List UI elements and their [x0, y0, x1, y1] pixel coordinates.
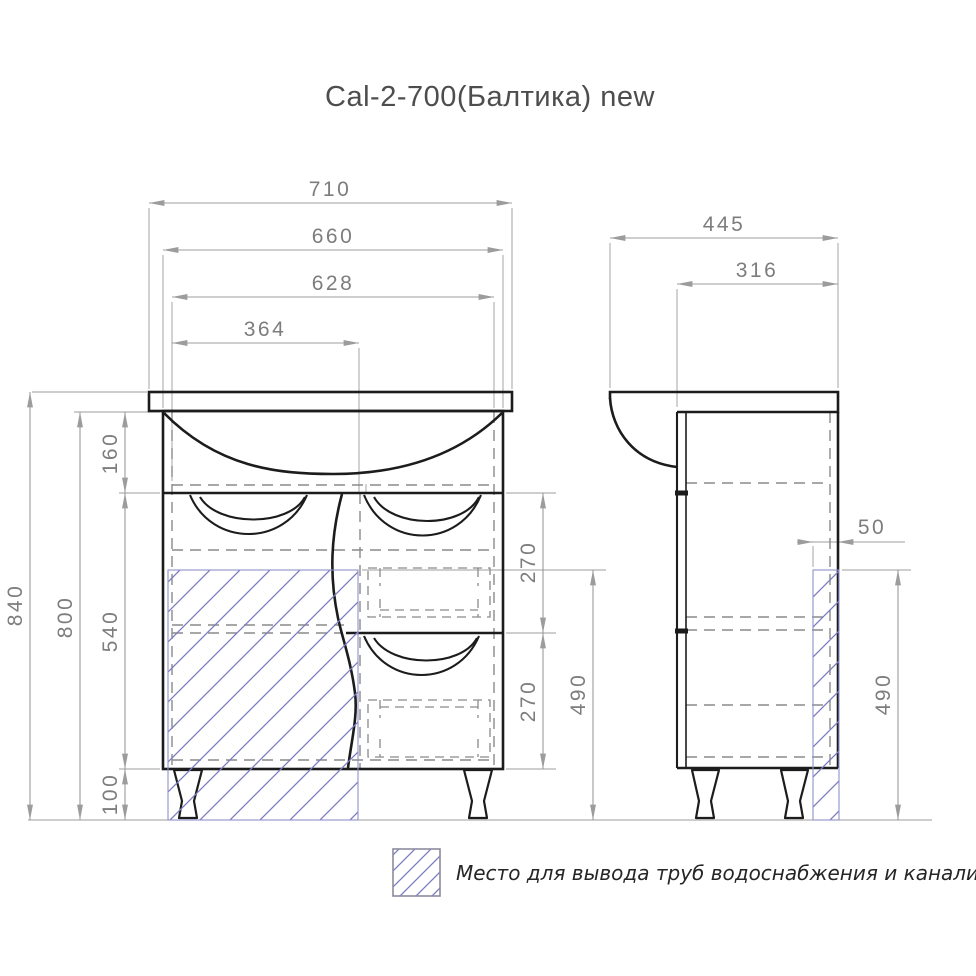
dim-front-overall-width: 710 [309, 178, 352, 201]
dim-front-top-section-height: 160 [99, 432, 122, 475]
dim-front-drawer-top-height: 270 [517, 541, 540, 584]
vanity-technical-drawing: Cal-2-700(Балтика) new [0, 0, 976, 976]
side-worktop [610, 392, 838, 412]
dim-front-cabinet-width: 660 [312, 225, 355, 248]
front-pipe-zone-hatch [168, 570, 358, 820]
dim-side-body-depth: 316 [736, 259, 779, 282]
technical-drawing-page: Cal-2-700(Балтика) new [0, 0, 976, 976]
side-view-outline [610, 392, 838, 818]
bottom-drawer-handle [364, 636, 479, 675]
dim-front-drawer-bottom-height: 270 [517, 680, 540, 723]
dim-front-overall-height: 840 [4, 584, 27, 627]
legend-label: Место для вывода труб водоснабжения и ка… [456, 861, 976, 885]
dimension-lines [30, 203, 905, 820]
dimension-labels: 710 660 628 364 840 800 160 540 100 270 … [4, 178, 895, 815]
dim-front-cabinet-height: 800 [54, 596, 77, 639]
front-view [149, 392, 512, 820]
drawing-title: Cal-2-700(Балтика) new [325, 81, 655, 113]
side-view-hidden-lines [686, 412, 830, 768]
hatch-swatch-icon [393, 849, 440, 896]
dim-side-pipe-zone-height: 490 [872, 673, 895, 716]
dim-side-pipe-zone-depth: 50 [858, 516, 886, 539]
dim-front-left-section-width: 364 [244, 318, 287, 341]
washbasin-front-curve [164, 413, 502, 474]
dim-front-pipe-zone-height: 490 [567, 673, 590, 716]
side-back-leg [781, 770, 808, 818]
dim-front-inner-width: 628 [312, 272, 355, 295]
front-right-leg [464, 770, 492, 818]
dim-side-overall-depth: 445 [703, 213, 746, 236]
washbasin-side-curve [610, 398, 677, 467]
side-front-leg [692, 770, 719, 818]
side-view [610, 392, 839, 820]
dim-front-leg-height: 100 [99, 773, 122, 816]
dim-front-door-height: 540 [99, 610, 122, 653]
legend: Место для вывода труб водоснабжения и ка… [393, 849, 976, 896]
top-drawer-handle [364, 495, 481, 536]
side-pipe-zone-hatch [813, 570, 839, 820]
left-door-handle [190, 495, 307, 534]
